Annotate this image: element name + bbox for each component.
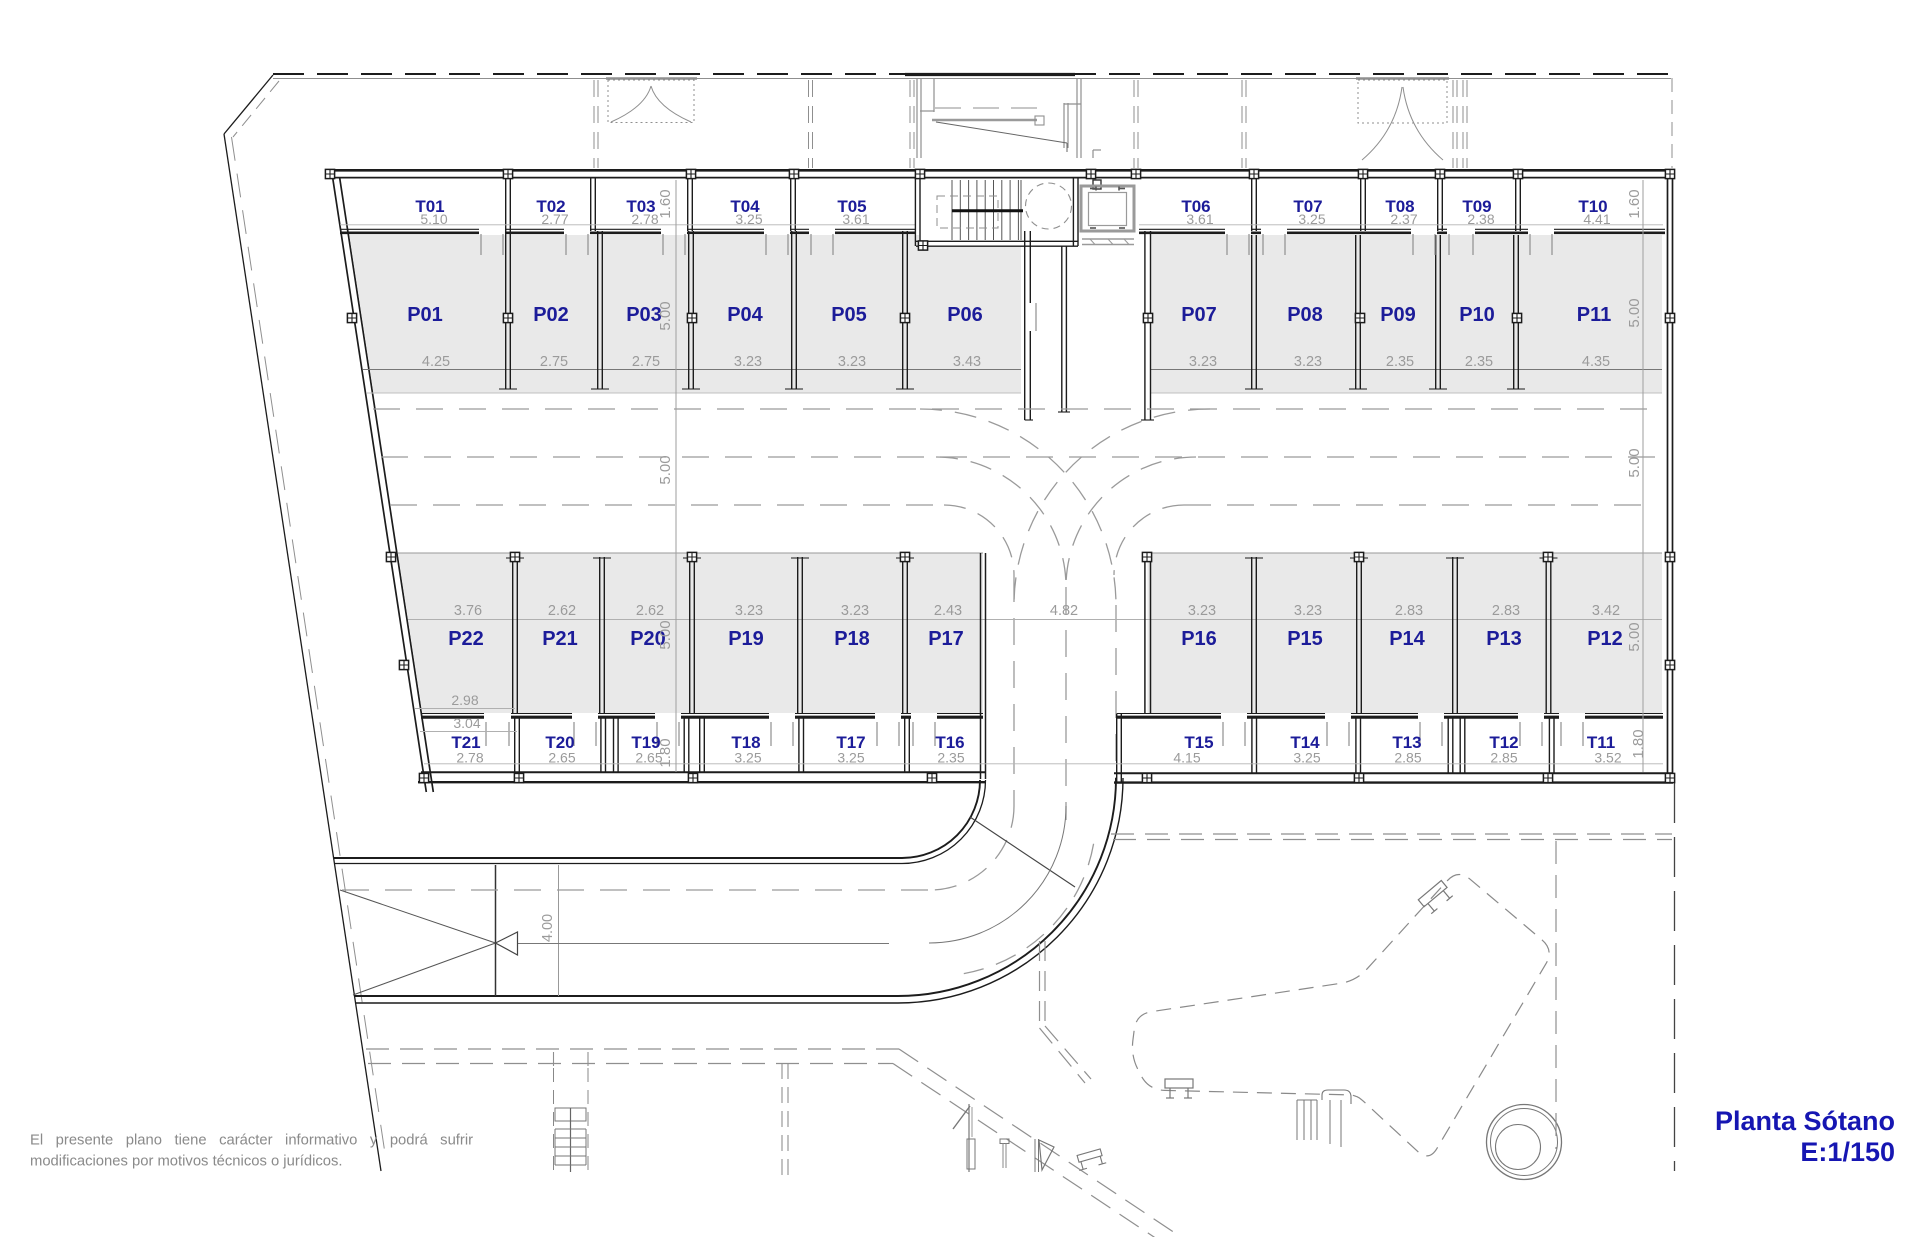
svg-text:5.00: 5.00	[1626, 448, 1643, 477]
svg-text:2.43: 2.43	[934, 603, 962, 619]
svg-text:2.75: 2.75	[632, 354, 660, 370]
svg-text:3.23: 3.23	[841, 603, 869, 619]
svg-text:P02: P02	[533, 304, 569, 326]
svg-text:P04: P04	[727, 304, 763, 326]
svg-text:P05: P05	[831, 304, 867, 326]
svg-text:P17: P17	[928, 628, 964, 650]
svg-text:3.23: 3.23	[838, 354, 866, 370]
svg-text:3.52: 3.52	[1594, 750, 1621, 766]
svg-text:2.35: 2.35	[1386, 354, 1414, 370]
svg-text:1.80: 1.80	[1630, 729, 1647, 758]
svg-text:3.23: 3.23	[1294, 354, 1322, 370]
svg-text:P16: P16	[1181, 628, 1217, 650]
svg-text:P06: P06	[947, 304, 983, 326]
svg-text:5.00: 5.00	[657, 620, 674, 649]
svg-text:E:1/150: E:1/150	[1800, 1137, 1895, 1167]
svg-text:1.60: 1.60	[657, 189, 674, 218]
svg-text:Planta Sótano: Planta Sótano	[1715, 1106, 1895, 1136]
svg-text:3.23: 3.23	[1189, 354, 1217, 370]
svg-text:5.00: 5.00	[1626, 298, 1643, 327]
svg-text:3.23: 3.23	[734, 354, 762, 370]
svg-text:3.23: 3.23	[1294, 603, 1322, 619]
svg-text:2.78: 2.78	[456, 750, 483, 766]
svg-text:P10: P10	[1459, 304, 1495, 326]
svg-text:3.23: 3.23	[1188, 603, 1216, 619]
svg-text:P15: P15	[1287, 628, 1323, 650]
svg-text:4.35: 4.35	[1582, 354, 1610, 370]
svg-text:3.42: 3.42	[1592, 603, 1620, 619]
svg-text:P13: P13	[1486, 628, 1522, 650]
svg-text:3.76: 3.76	[454, 603, 482, 619]
svg-text:P18: P18	[834, 628, 870, 650]
svg-text:P07: P07	[1181, 304, 1217, 326]
svg-text:4.25: 4.25	[422, 354, 450, 370]
svg-text:P19: P19	[728, 628, 764, 650]
svg-text:1.60: 1.60	[1626, 189, 1643, 218]
svg-text:P14: P14	[1389, 628, 1425, 650]
svg-text:3.23: 3.23	[735, 603, 763, 619]
svg-text:P11: P11	[1577, 304, 1611, 326]
svg-text:3.25: 3.25	[837, 750, 864, 766]
svg-text:4.15: 4.15	[1173, 750, 1200, 766]
svg-text:2.35: 2.35	[1465, 354, 1493, 370]
svg-text:modificaciones por motivos téc: modificaciones por motivos técnicos o ju…	[30, 1154, 343, 1170]
svg-text:4.82: 4.82	[1050, 603, 1078, 619]
svg-text:P21: P21	[542, 628, 578, 650]
svg-text:2.85: 2.85	[1490, 750, 1517, 766]
svg-text:5.00: 5.00	[657, 301, 674, 330]
svg-text:P01: P01	[407, 304, 443, 326]
svg-text:3.25: 3.25	[734, 750, 761, 766]
svg-text:2.65: 2.65	[548, 750, 575, 766]
svg-text:5.00: 5.00	[1626, 622, 1643, 651]
svg-text:4.00: 4.00	[540, 914, 556, 942]
svg-text:5.00: 5.00	[657, 455, 674, 484]
svg-text:2.83: 2.83	[1492, 603, 1520, 619]
svg-text:3.04: 3.04	[453, 715, 480, 731]
svg-text:2.62: 2.62	[636, 603, 664, 619]
svg-text:P22: P22	[448, 628, 484, 650]
svg-text:3.25: 3.25	[1293, 750, 1320, 766]
svg-text:2.35: 2.35	[937, 750, 964, 766]
svg-text:P12: P12	[1587, 628, 1623, 650]
svg-text:2.75: 2.75	[540, 354, 568, 370]
svg-text:2.62: 2.62	[548, 603, 576, 619]
svg-text:P09: P09	[1380, 304, 1416, 326]
svg-text:El presente plano tiene caráct: El presente plano tiene carácter informa…	[30, 1133, 473, 1149]
svg-text:2.85: 2.85	[1394, 750, 1421, 766]
svg-text:2.98: 2.98	[451, 692, 478, 708]
svg-text:3.43: 3.43	[953, 354, 981, 370]
svg-text:P08: P08	[1287, 304, 1323, 326]
svg-text:1.80: 1.80	[657, 738, 674, 767]
svg-text:2.83: 2.83	[1395, 603, 1423, 619]
